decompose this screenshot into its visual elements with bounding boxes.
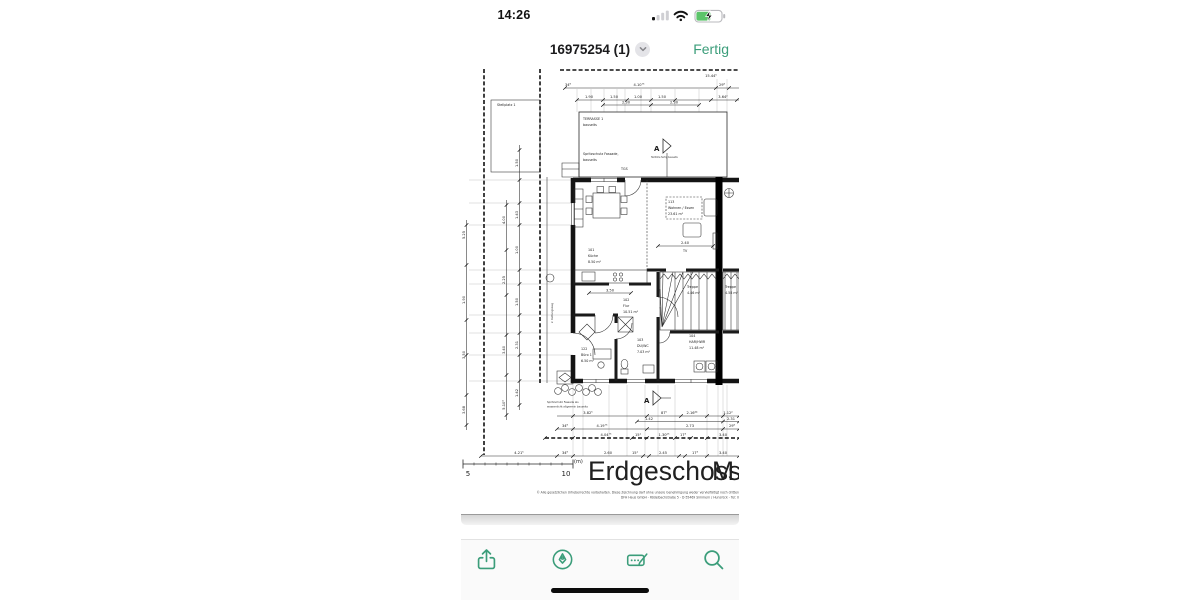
room-area: 7.03 m² [637,350,651,354]
room-no: 104 [689,334,695,338]
page-edge-shadow [461,514,739,525]
dim-label: 1.50 [658,95,667,99]
dining-furniture [586,187,627,219]
dim-label: 2.16⁴⁴ [687,411,698,415]
stair-area: 4.46 m² [687,291,701,295]
dim-label: 2.73 [686,424,694,428]
autofill-signature-button[interactable] [624,546,651,573]
dim-label: 1.42 [645,417,653,421]
dim-label: 5.10⁴ [502,400,506,410]
site-details: 2. Rettungsweg [546,177,573,384]
dim-label: 1.00 [634,95,643,99]
dim-label: 2.31 [727,417,735,421]
room-no: 102 [623,298,629,302]
dim-label: 17³ [680,433,687,437]
utility-room: 104 HAR/HWR 11.48 m² [689,334,717,372]
dim-label: 34⁸ [562,451,569,455]
title-dropdown-button[interactable] [635,42,650,57]
room-name: DU/WC [637,344,649,348]
floor-plan-drawing: 5.25 1.90 3.50 3.68 4.00 2.25 3.40 5.10⁴… [461,65,739,513]
terrace-label2: bauseits [583,123,597,127]
stair2-label: Treppe [724,285,736,289]
copyright-line-2: DFH Haus GmbH - Rödelbachstraße 5 - D-55… [621,496,739,500]
nav-bar: 16975254 (1) Fertig [461,34,739,64]
interior-walls [573,180,739,381]
room-area: 23.61 m² [668,212,684,216]
dim-label: 2.30 [622,101,631,105]
plan-scale-label: M 1: [712,456,739,486]
room-no: 103 [637,338,643,342]
partial-height-note: Teilhöhe fertig bauseits [651,156,679,159]
stair2-area: 4.58 m² [725,291,739,295]
dim-label: 2.31 [515,341,519,349]
copyright-line-1: © Alle gesetzlichen Urheberrechte vorbeh… [537,491,739,495]
dim-label: 3.40 [719,433,728,437]
copyright: © Alle gesetzlichen Urheberrechte vorbeh… [537,491,739,500]
splash-guard-label2: bauseits [583,158,597,162]
dim-label: 3.68 [462,405,466,414]
dim-label: 3.40 [502,345,506,354]
chevron-down-icon [637,43,649,55]
stellplatz-label: Stellplatz 1 [497,103,515,107]
share-icon [474,547,499,572]
cellular-signal-icon [652,11,669,21]
dim-label: 1.50 [515,158,519,167]
pdf-page[interactable]: 5.25 1.90 3.50 3.68 4.00 2.25 3.40 5.10⁴… [461,65,739,513]
escape-route-note: 2. Rettungsweg [550,303,554,324]
dim-label: 4.10⁷⁵ [634,83,645,87]
dim-label: 1.90 [585,95,594,99]
room-name: Wohnen / Essen [668,206,694,210]
dim-label: 1.12² [723,411,733,415]
dim-label: 3.64² [718,95,728,99]
search-icon [701,547,726,572]
splash-guard-label: Spritzschutz Fassade, [583,152,619,156]
dim-label: 1.50 [515,297,519,306]
status-icons [651,7,729,29]
kitchen-label: 101 Küche 8.50 m² [588,248,602,264]
property-boundary [484,69,739,455]
dim-label: 15¹ [632,451,639,455]
terrace: TERRASSE 1 bauseits Spritzschutz Fassade… [579,112,727,177]
room-name: Küche [588,254,598,258]
dim-label: 2.60 [604,451,613,455]
dim-label: 1.90 [462,295,466,304]
status-bar: 14:26 [461,5,739,27]
room-area: 6.50 m² [581,359,595,363]
section-marker-a-bottom: A [644,397,650,405]
dim-label: 3.40 [719,451,728,455]
markup-button[interactable] [549,546,576,573]
home-indicator[interactable] [551,588,649,593]
terrace-label: TERRASSE 1 [582,117,603,121]
left-dimension-chains: 5.25 1.90 3.50 3.68 4.00 2.25 3.40 5.10⁴… [462,145,521,430]
dim-label: 17³ [692,451,699,455]
room-area: 10.51 m² [623,310,639,314]
wifi-icon [675,12,687,21]
extension-lines [469,79,727,456]
dim-label: 2.25 [502,276,506,284]
room-no: 122 [581,347,587,351]
dim-label: 87⁵ [661,411,668,415]
dim-label: 2.30 [670,101,679,105]
dim-label: 4.19⁷⁵ [597,424,608,428]
room-name: Büro 1 [581,353,592,357]
dim-label: 1.42 [515,389,519,397]
dim-label: 4.21⁵ [514,451,524,455]
splash-note-2: wasserdicht allgemein bauseits [547,405,588,409]
document-title: 16975254 (1) [550,42,630,57]
stair-label: Treppe [686,285,698,289]
room-area: 11.48 m² [689,346,705,350]
dim-label: 4.04⁷⁵ [601,433,612,437]
autofill-signature-icon [625,547,650,572]
dim-label: 1.50 [610,95,619,99]
living-room: 113 Wohnen / Essen 23.61 m² 2.40 TV [656,197,717,253]
dim-label: 3.50 [462,350,466,359]
scale-bar: 5 10 (m) [463,459,583,478]
scale-unit: (m) [574,459,583,465]
room-area: 8.50 m² [588,260,602,264]
dim-label: 1.00 [515,245,519,254]
dim-label: 29⁸ [729,424,736,428]
dim-label: 5.25 [462,231,466,239]
scale-ten: 10 [562,470,571,478]
dim-label: 34⁸ [562,424,569,428]
dim-label: 4.00 [502,215,506,224]
bathroom: 103 DU/WC 7.03 m² [618,317,654,374]
tgs-label: TGS [620,167,628,171]
hall-dim: 3.50 [606,289,615,293]
section-marker-a-top: A [654,145,660,153]
done-button[interactable]: Fertig [693,41,729,57]
dim-label: 15.44⁵ [705,74,717,78]
scale-five: 5 [466,470,470,478]
room-name: HAR/HWR [689,340,706,344]
doors [573,180,678,355]
tv-dim: 2.40 [681,241,690,245]
dim-label: 2.45 [659,451,667,455]
splash-note-1: Spritzschutz Fassade als [547,400,579,404]
kitchen-fixtures [574,189,647,283]
dim-label: 29⁸ [719,83,726,87]
room-name: Flur [623,304,630,308]
battery-charging-icon [695,10,725,22]
phone-screen: 14:26 [461,0,739,600]
dim-label: 15¹ [635,433,642,437]
stellplatz-area: Stellplatz 1 [491,100,579,177]
room-no: 113 [668,200,674,204]
dim-label: 34⁸ [565,83,572,87]
room-no: 101 [588,248,594,252]
share-button[interactable] [473,546,500,573]
status-time: 14:26 [483,8,545,22]
exterior-walls [571,177,739,385]
dim-label: 1.43 [515,211,519,219]
plan-title-group: Erdgeschoss M 1: [588,456,739,486]
hall-label: 3.50 102 Flur 10.51 m² [587,289,638,315]
search-button[interactable] [700,546,727,573]
tv-label: TV [682,249,688,253]
dim-label: 1.30²⁵ [659,433,670,437]
markup-icon [550,547,575,572]
dim-label: 3.82⁵ [583,411,593,415]
